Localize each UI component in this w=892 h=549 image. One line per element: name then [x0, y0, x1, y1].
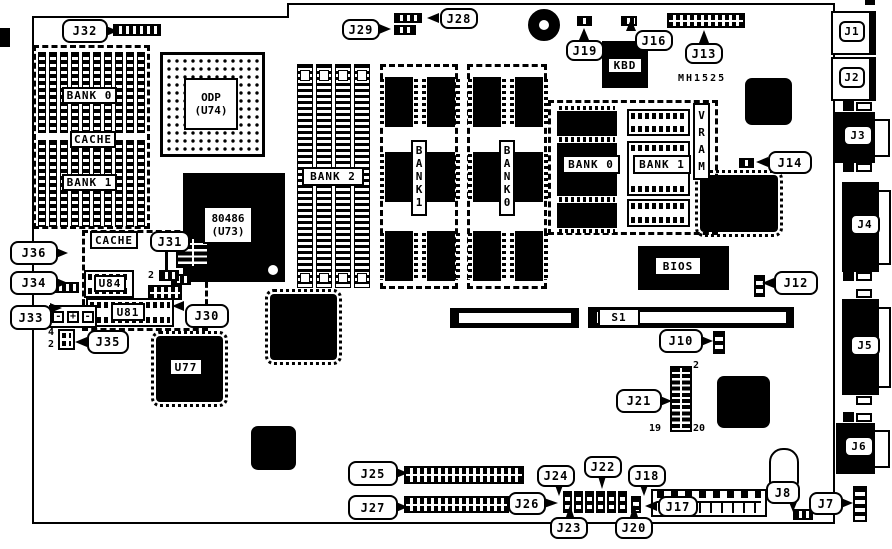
dram-chip	[515, 152, 543, 202]
callout-j16-tail-icon	[626, 19, 636, 31]
callout-j21-label: J21	[627, 394, 652, 408]
connector-j30	[148, 285, 182, 300]
qfp-chip	[270, 294, 337, 360]
callout-j33-label: J33	[19, 311, 44, 325]
port-j3-shell	[873, 119, 890, 157]
callout-j19-tail-icon	[579, 28, 589, 40]
callout-j30-label: J30	[195, 309, 220, 323]
kbd-label: KBD	[607, 57, 643, 74]
cpu-line1: 80486	[211, 212, 244, 225]
callout-j17-tail-icon	[645, 501, 657, 511]
mounting-hole-icon	[528, 9, 560, 41]
jumper-j10	[713, 331, 725, 354]
bracket-nub	[843, 101, 854, 111]
j35-pin4-number: 4	[48, 327, 54, 338]
board-edge-step	[287, 4, 289, 18]
j21-pin19-number: 19	[649, 423, 661, 434]
callout-j14-tail-icon	[756, 157, 768, 167]
board-edge-top-right	[287, 3, 835, 5]
odp-line2: (U74)	[194, 104, 227, 117]
dram-chip	[385, 77, 413, 127]
callout-j20-label: J20	[622, 521, 647, 535]
cache-bank1-label: BANK 1	[62, 174, 117, 191]
callout-j13-label: J13	[692, 47, 717, 61]
port-j6-shell	[873, 430, 890, 468]
connector-j25	[404, 466, 524, 484]
callout-j31-tail-icon	[165, 250, 168, 271]
bios-label: BIOS	[654, 256, 702, 276]
dram-chip	[473, 152, 501, 202]
j2-label: J2	[839, 67, 865, 88]
callout-j25: J25	[348, 461, 398, 486]
connector-j32	[113, 24, 161, 36]
dram-bank0-label: BANK0	[499, 140, 515, 216]
battery-pos-icon: +	[67, 311, 79, 323]
jumper-cluster	[607, 491, 616, 513]
callout-j28-tail-icon	[427, 13, 439, 23]
callout-j12-tail-icon	[762, 278, 774, 288]
dram-chip	[473, 231, 501, 281]
chipset-chip	[717, 376, 770, 428]
connector-j7	[853, 486, 867, 522]
u81-label: U81	[111, 303, 145, 321]
callout-j35-label: J35	[96, 335, 121, 349]
callout-j16: J16	[635, 30, 673, 51]
callout-j12-label: J12	[784, 276, 809, 290]
callout-j17-label: J17	[666, 500, 691, 514]
motherboard-diagram: J32 BANK 0 CACHE BANK 1 ODP (U74) 80486 …	[0, 0, 892, 549]
dram-chip	[385, 152, 413, 202]
callout-j19-label: J19	[573, 44, 598, 58]
callout-j23-label: J23	[557, 521, 582, 535]
j1-label: J1	[839, 21, 865, 42]
callout-j28-label: J28	[447, 12, 472, 26]
dram-chip	[427, 77, 455, 127]
callout-j26: J26	[508, 492, 546, 515]
callout-j20-tail-icon	[630, 505, 638, 517]
dip-socket	[38, 52, 57, 133]
u77-label: U77	[169, 358, 203, 376]
callout-j34-label: J34	[22, 276, 47, 290]
callout-j27: J27	[348, 495, 398, 520]
small-chip	[251, 426, 296, 470]
bracket-tab	[856, 163, 872, 172]
bracket-tab	[856, 396, 872, 405]
callout-j10: J10	[659, 329, 703, 353]
callout-j26-tail-icon	[544, 498, 558, 508]
dram-chip	[515, 77, 543, 127]
callout-j13-tail-icon	[699, 30, 709, 43]
dram-bank1-label: BANK1	[411, 140, 427, 216]
bracket-tab	[856, 102, 872, 111]
top-right-corner-tab	[865, 0, 875, 5]
connector-j21	[670, 366, 692, 432]
jumper-j35	[58, 329, 75, 350]
vram-label: VRAM	[693, 103, 710, 180]
cpu-line2: (U73)	[211, 225, 244, 238]
callout-j22-label: J22	[591, 460, 616, 474]
left-edge-tab	[0, 28, 10, 47]
s1-label: S1	[598, 308, 640, 327]
callout-j29-label: J29	[349, 23, 374, 37]
cpu-label: 80486 (U73)	[203, 206, 253, 244]
dip-socket	[126, 52, 145, 133]
cpu-pin1-dot-icon	[268, 265, 278, 275]
jumper-cluster	[596, 491, 605, 513]
callout-j25-label: J25	[361, 467, 386, 481]
j31-pin2-number: 2	[148, 270, 154, 281]
board-id-text: MH1525	[678, 73, 726, 84]
callout-j28: J28	[440, 8, 478, 29]
dip-socket	[126, 140, 145, 227]
callout-j32-label: J32	[73, 24, 98, 38]
j35-pin2-number: 2	[48, 339, 54, 350]
callout-j32: J32	[62, 19, 108, 43]
vram-chip	[557, 111, 617, 136]
callout-j27-label: J27	[361, 501, 386, 515]
callout-j22: J22	[584, 456, 622, 478]
cache-bank0-label: BANK 0	[62, 87, 117, 104]
bracket-tab	[856, 413, 872, 422]
callout-j7-label: J7	[818, 497, 834, 511]
callout-j10-label: J10	[669, 334, 694, 348]
dram-chip	[473, 77, 501, 127]
callout-j29-tail-icon	[379, 24, 391, 34]
callout-j18: J18	[628, 465, 666, 487]
callout-j7: J7	[809, 492, 843, 515]
jumper-j29	[394, 25, 416, 35]
callout-j13: J13	[685, 43, 723, 64]
expansion-slot-inner	[459, 313, 571, 323]
callout-j8: J8	[766, 481, 800, 504]
j4-label: J4	[850, 214, 880, 235]
vram-socket	[627, 199, 690, 227]
battery-neg2-icon: -	[82, 311, 94, 323]
j21-pin2-number: 2	[693, 360, 699, 371]
board-edge-top-left	[32, 16, 288, 18]
odp-line1: ODP	[201, 91, 221, 104]
connector-j27	[404, 496, 509, 513]
vram-socket	[627, 109, 690, 136]
callout-j24-label: J24	[544, 469, 569, 483]
bracket-tab	[856, 272, 872, 281]
jumper-cluster	[618, 491, 627, 513]
vram-bank1-label: BANK 1	[633, 155, 691, 174]
dram-chip	[515, 231, 543, 281]
jumper-j19	[577, 16, 592, 26]
callout-j19: J19	[566, 40, 604, 61]
vram-bank0-label: BANK 0	[562, 155, 620, 174]
vram-chip	[557, 203, 617, 228]
callout-j29: J29	[342, 19, 380, 40]
callout-j23-tail-icon	[566, 505, 574, 517]
bank2-label: BANK 2	[302, 167, 364, 186]
jumper-cluster	[574, 491, 583, 513]
video-controller-chip	[700, 175, 778, 232]
jumper-j14	[739, 158, 754, 168]
j3-label: J3	[843, 125, 873, 146]
odp-chip-label: ODP (U74)	[184, 78, 238, 130]
callout-j33: J33	[10, 305, 52, 330]
callout-j12: J12	[774, 271, 818, 295]
plcc-chip	[745, 78, 792, 125]
j21-pin20-number: 20	[693, 423, 705, 434]
u84-label: U84	[94, 275, 126, 292]
bracket-nub	[843, 412, 854, 422]
bracket-tab	[856, 289, 872, 298]
callout-j16-label: J16	[642, 34, 667, 48]
bracket-nub	[843, 162, 854, 172]
dram-chip	[427, 231, 455, 281]
cache2-label: CACHE	[90, 231, 138, 249]
board-edge-bottom	[32, 522, 835, 524]
callout-j35-tail-icon	[75, 337, 87, 347]
callout-j20: J20	[615, 517, 653, 539]
callout-j31: J31	[150, 231, 190, 252]
callout-j17: J17	[658, 496, 698, 517]
callout-j8-label: J8	[775, 486, 791, 500]
dram-chip	[427, 152, 455, 202]
callout-j18-label: J18	[635, 469, 660, 483]
callout-j24: J24	[537, 465, 575, 487]
cache-label: CACHE	[70, 131, 116, 148]
callout-j21: J21	[616, 389, 662, 413]
callout-j30: J30	[185, 304, 229, 328]
callout-j35: J35	[87, 330, 129, 354]
j6-label: J6	[844, 436, 874, 457]
dip-socket	[38, 140, 57, 227]
callout-j14-label: J14	[778, 156, 803, 170]
callout-j36: J36	[10, 241, 58, 265]
jumper-cluster	[585, 491, 594, 513]
j5-label: J5	[850, 335, 880, 356]
jumper-j28	[394, 13, 422, 23]
dram-chip	[385, 231, 413, 281]
callout-j34: J34	[10, 271, 58, 295]
callout-j14: J14	[768, 151, 812, 174]
callout-j36-label: J36	[22, 246, 47, 260]
callout-j31-label: J31	[158, 235, 183, 249]
jumper-j31	[159, 270, 179, 281]
callout-j23: J23	[550, 517, 588, 539]
bracket-nub	[843, 271, 854, 281]
connector-j13	[667, 13, 745, 28]
callout-j26-label: J26	[515, 497, 540, 511]
callout-j30-tail-icon	[172, 301, 184, 311]
